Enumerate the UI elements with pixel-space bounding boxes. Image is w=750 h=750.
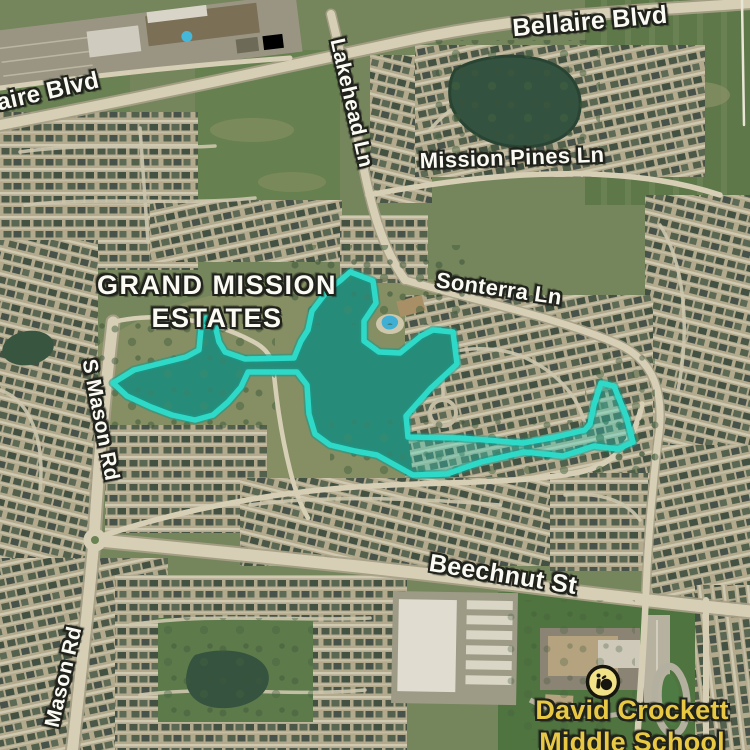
map-canvas[interactable]: Bellaire Blvd aire Blvd Lakehead Ln Miss… — [0, 0, 750, 750]
running-track — [652, 665, 690, 736]
building-complex — [391, 591, 518, 705]
roundabout-island — [91, 536, 99, 544]
school-marker[interactable] — [588, 667, 619, 698]
satellite-imagery — [0, 0, 750, 750]
